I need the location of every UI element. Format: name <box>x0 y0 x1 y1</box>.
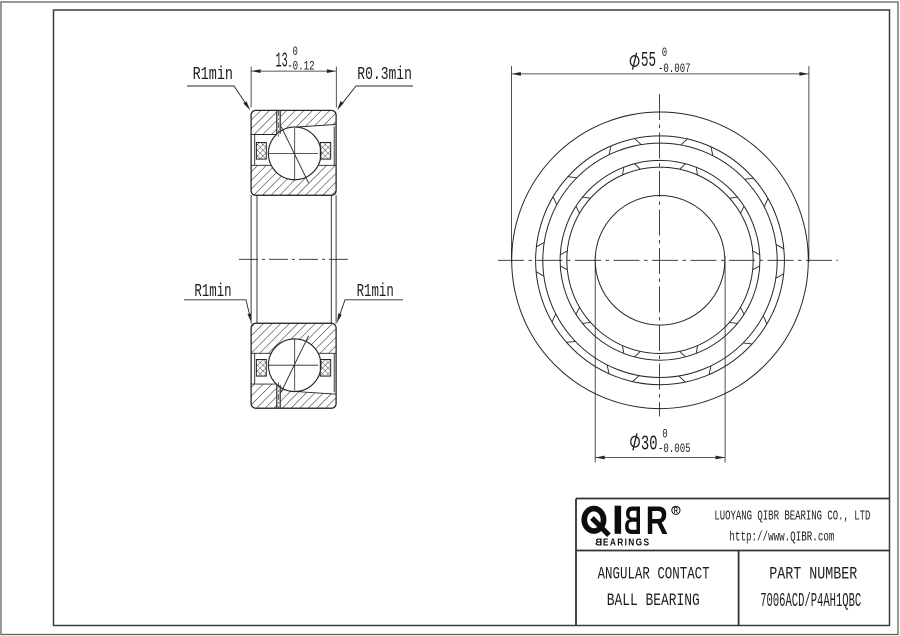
svg-text:30: 30 <box>641 432 658 456</box>
svg-text:EARINGS: EARINGS <box>603 537 651 548</box>
svg-text:ANGULAR CONTACT: ANGULAR CONTACT <box>598 565 710 585</box>
svg-text:R1min: R1min <box>357 282 394 302</box>
svg-text:BALL BEARING: BALL BEARING <box>607 591 700 611</box>
svg-text:B: B <box>595 537 602 548</box>
svg-text:0: 0 <box>662 45 667 60</box>
svg-text:7006ACD/P4AH1QBC: 7006ACD/P4AH1QBC <box>760 590 861 612</box>
svg-text:http://www.QIBR.com: http://www.QIBR.com <box>729 529 834 545</box>
svg-text:R1min: R1min <box>193 65 233 85</box>
svg-text:0: 0 <box>293 45 298 59</box>
svg-text:PART NUMBER: PART NUMBER <box>769 565 857 585</box>
svg-text:-0.12: -0.12 <box>287 59 314 73</box>
svg-text:0: 0 <box>662 426 667 441</box>
svg-text:R: R <box>646 498 668 543</box>
svg-text:R1min: R1min <box>194 282 231 302</box>
svg-text:R0.3min: R0.3min <box>357 65 412 85</box>
svg-text:55: 55 <box>641 50 656 73</box>
svg-text:13: 13 <box>276 49 288 73</box>
svg-text:-0.005: -0.005 <box>658 441 691 456</box>
svg-text:-0.007: -0.007 <box>658 61 691 76</box>
svg-text:B: B <box>624 498 642 542</box>
svg-text:R: R <box>674 506 678 515</box>
svg-text:LUOYANG QIBR BEARING CO., LTD: LUOYANG QIBR BEARING CO., LTD <box>714 510 870 525</box>
